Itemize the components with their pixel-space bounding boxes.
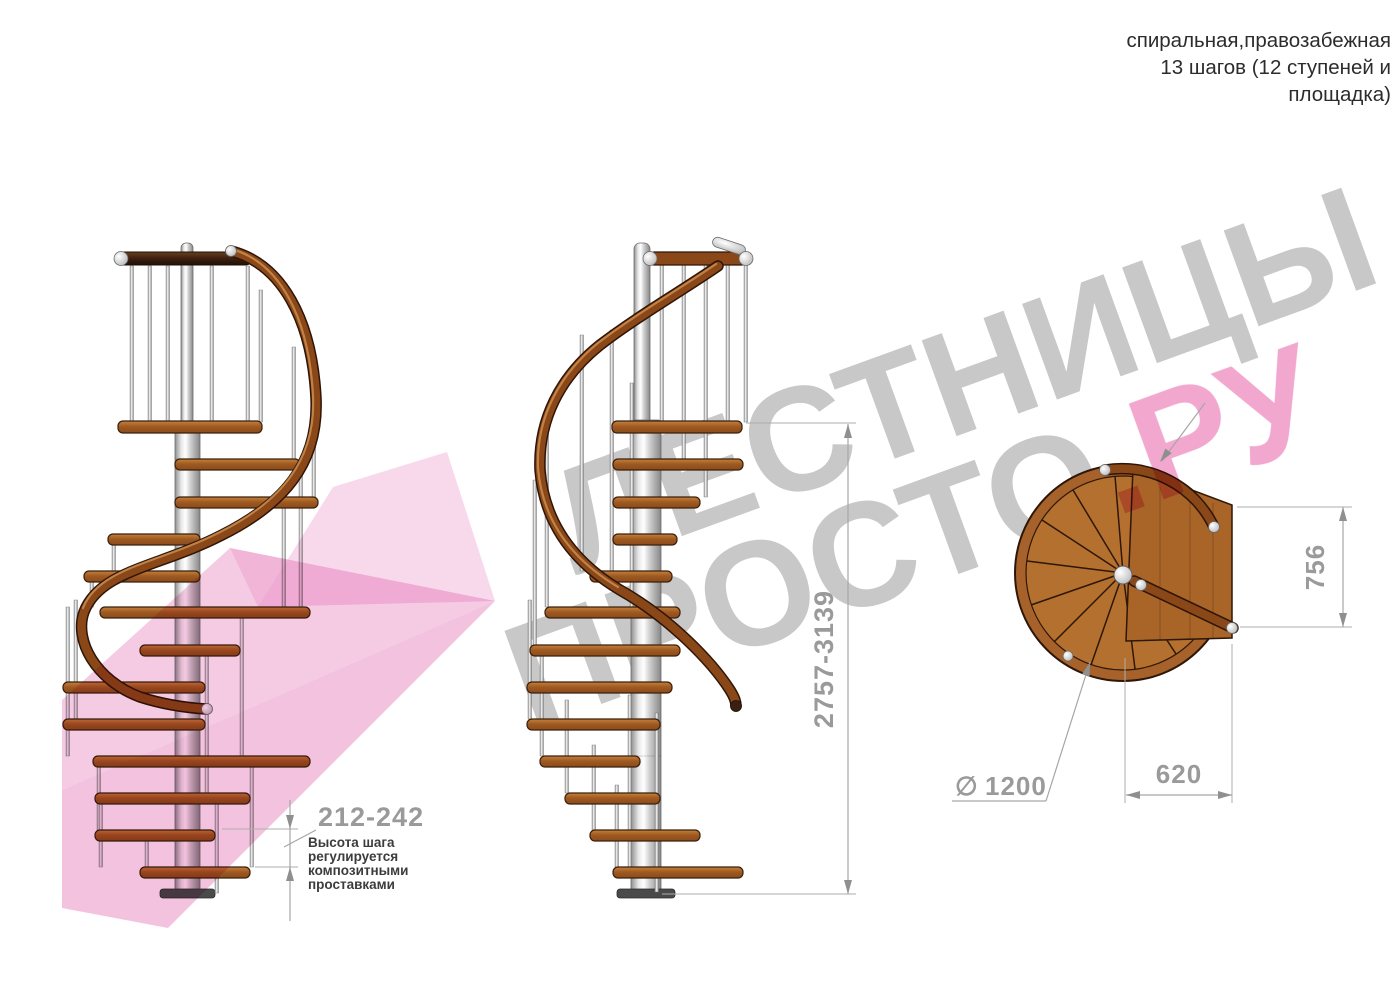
handrail-end-cap bbox=[1063, 651, 1073, 661]
center-pole-upper bbox=[634, 243, 650, 428]
baluster bbox=[292, 347, 296, 459]
handrail-end-cap bbox=[114, 252, 128, 266]
dim-arrow bbox=[1339, 507, 1347, 521]
handrail-end-cap bbox=[739, 252, 753, 266]
baluster bbox=[726, 263, 730, 422]
baluster bbox=[259, 290, 263, 422]
landing-platform bbox=[612, 421, 742, 433]
tread bbox=[175, 459, 300, 470]
handrail-end-cap bbox=[226, 246, 237, 257]
dim-total-height: 2757-3139 bbox=[809, 590, 839, 728]
center-pole-upper bbox=[181, 243, 193, 428]
baluster bbox=[660, 263, 664, 422]
dim-plan-depth: 756 bbox=[1300, 544, 1330, 590]
dim-arrow bbox=[286, 815, 294, 829]
rail-cap bbox=[1136, 580, 1147, 591]
handrail-end-cap bbox=[731, 701, 742, 712]
note-line: регулируется bbox=[308, 849, 398, 864]
title-block: спиральная,правозабежная 13 шагов (12 ст… bbox=[1126, 29, 1391, 106]
dim-diameter-value: 1200 bbox=[985, 771, 1047, 801]
tread bbox=[590, 830, 700, 841]
baluster bbox=[744, 263, 748, 422]
tread bbox=[565, 793, 660, 804]
plan-center-pole bbox=[1114, 566, 1132, 584]
landing-platform bbox=[118, 421, 262, 433]
landing-handrail bbox=[648, 252, 748, 265]
tread bbox=[175, 497, 318, 508]
dim-step-note: Высота шага регулируется композитными пр… bbox=[308, 835, 408, 892]
dim-step-height: 212-242 bbox=[318, 802, 424, 832]
dim-arrow bbox=[286, 867, 294, 881]
baluster bbox=[246, 266, 250, 422]
note-line: проставками bbox=[308, 877, 395, 892]
tread bbox=[613, 867, 743, 878]
staircase-drawing: ЛЕСТНИЦЫ ПРОСТО.РУ bbox=[0, 0, 1400, 1000]
dim-diameter-symbol: ∅ bbox=[955, 771, 979, 801]
title-line: площадка) bbox=[1288, 83, 1391, 106]
dim-plan-width: 620 bbox=[1156, 759, 1202, 789]
title-line: спиральная,правозабежная bbox=[1126, 29, 1391, 52]
dim-arrow bbox=[1126, 791, 1140, 799]
tread bbox=[613, 459, 743, 470]
title-line: 13 шагов (12 ступеней и bbox=[1160, 56, 1391, 79]
dim-arrow bbox=[844, 880, 852, 894]
tread bbox=[108, 534, 200, 545]
tread bbox=[613, 497, 700, 508]
baluster bbox=[210, 266, 214, 422]
drawing-page: ЛЕСТНИЦЫ ПРОСТО.РУ bbox=[0, 0, 1400, 1000]
handrail-end-cap bbox=[643, 252, 657, 266]
dim-arrow bbox=[1218, 791, 1232, 799]
tread bbox=[540, 756, 640, 767]
handrail-end-cap bbox=[1209, 522, 1220, 533]
baluster bbox=[166, 266, 170, 422]
rail-cap bbox=[1227, 623, 1238, 634]
baluster bbox=[130, 266, 134, 422]
baluster bbox=[610, 330, 614, 571]
note-line: Высота шага bbox=[308, 835, 395, 850]
baluster bbox=[148, 266, 152, 422]
dim-arrow bbox=[1339, 613, 1347, 627]
note-line: композитными bbox=[308, 863, 408, 878]
